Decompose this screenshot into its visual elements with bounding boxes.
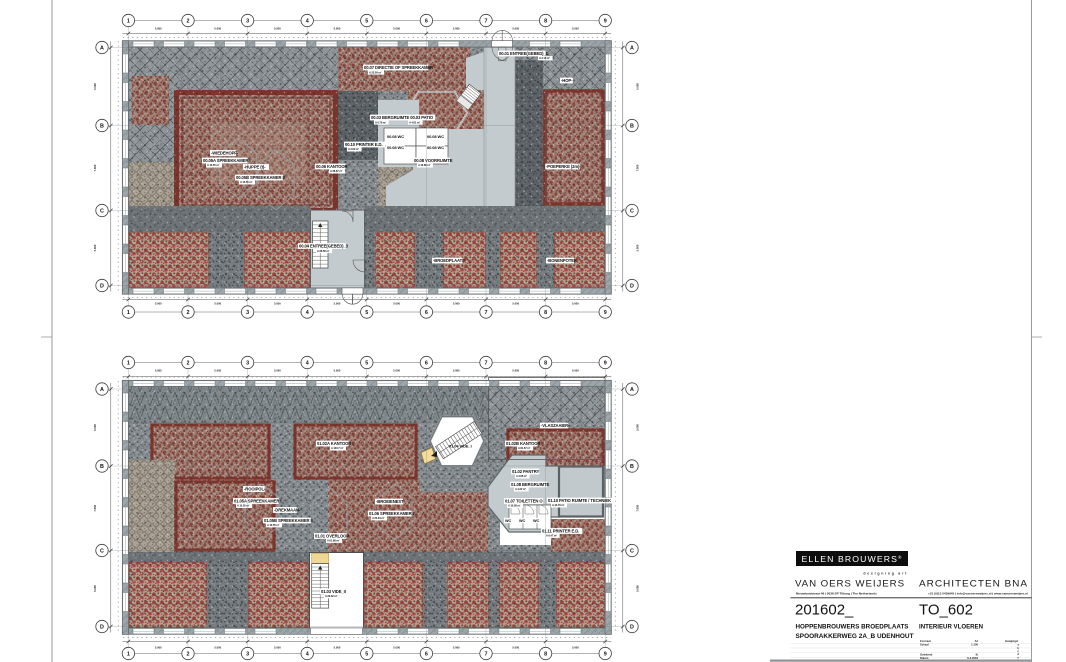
- svg-text:5.000: 5.000: [453, 302, 460, 306]
- svg-text:4: 4: [306, 310, 309, 316]
- svg-text:5.000: 5.000: [274, 302, 281, 306]
- svg-text:5.000: 5.000: [393, 646, 400, 650]
- svg-text:6-4-2018: 6-4-2018: [967, 656, 978, 660]
- svg-text:5.000: 5.000: [155, 302, 162, 306]
- svg-text:4: 4: [306, 360, 309, 366]
- svg-text:A 23.50 m²: A 23.50 m²: [369, 70, 382, 74]
- svg-text:B: B: [100, 464, 104, 470]
- svg-text:-BROEDPLAATS-: -BROEDPLAATS-: [433, 258, 467, 263]
- svg-text:A 6.79 m²: A 6.79 m²: [375, 120, 386, 124]
- svg-text:01.05B SPREEKKAMER II: 01.05B SPREEKKAMER II: [264, 518, 313, 523]
- svg-text:5.000: 5.000: [572, 646, 579, 650]
- svg-text:SPOORAKKERWEG 2A_B UDENHOUT: SPOORAKKERWEG 2A_B UDENHOUT: [796, 633, 915, 640]
- svg-text:5.000: 5.000: [274, 646, 281, 650]
- svg-text:5.000: 5.000: [214, 646, 221, 650]
- svg-text:A 16.89 m²: A 16.89 m²: [418, 163, 431, 167]
- svg-text:3: 3: [246, 651, 249, 657]
- svg-text:7: 7: [485, 310, 488, 316]
- svg-text:1: 1: [127, 18, 130, 24]
- svg-text:Schaal: Schaal: [920, 643, 929, 647]
- svg-text:WC: WC: [519, 519, 525, 523]
- svg-text:-POEPERKE (2m)-: -POEPERKE (2m)-: [546, 164, 581, 169]
- svg-text:C: C: [630, 548, 634, 554]
- svg-text:5.000: 5.000: [636, 244, 640, 251]
- svg-text:A: A: [630, 387, 634, 393]
- svg-text:8: 8: [544, 651, 547, 657]
- svg-text:5.000: 5.000: [453, 27, 460, 31]
- svg-text:5.000: 5.000: [393, 368, 400, 372]
- svg-text:C: C: [100, 208, 104, 214]
- svg-text:00.05B SPREEKKAMER II: 00.05B SPREEKKAMER II: [236, 175, 285, 180]
- svg-text:6: 6: [425, 360, 428, 366]
- svg-text:5.000: 5.000: [214, 27, 221, 31]
- svg-text:+31 (0)13 5439645 | info@vanoe: +31 (0)13 5439645 | info@vanoersweijers.…: [928, 592, 1028, 596]
- svg-text:00.06 KANTOOR: 00.06 KANTOOR: [316, 164, 348, 169]
- svg-text:5.000: 5.000: [334, 302, 341, 306]
- svg-text:00.10 PRINTER E.D.: 00.10 PRINTER E.D.: [345, 142, 383, 147]
- svg-text:1: 1: [127, 360, 130, 366]
- svg-text:A 28.56 m²: A 28.56 m²: [317, 249, 330, 253]
- svg-text:A 4.81 m²: A 4.81 m²: [409, 120, 420, 124]
- svg-text:5.000: 5.000: [155, 368, 162, 372]
- svg-text:9: 9: [604, 360, 607, 366]
- svg-text:VAN OERS WEIJERS: VAN OERS WEIJERS: [795, 579, 905, 590]
- svg-text:A 103.7 m²: A 103.7 m²: [331, 446, 344, 450]
- svg-text:9: 9: [604, 18, 607, 24]
- svg-text:00.08 WC: 00.08 WC: [387, 134, 404, 139]
- svg-text:D: D: [630, 283, 634, 289]
- svg-text:5: 5: [365, 651, 368, 657]
- svg-text:A 2.69 m²: A 2.69 m²: [348, 147, 359, 151]
- svg-text:5.000: 5.000: [512, 27, 519, 31]
- svg-text:ELLEN BROUWERS®: ELLEN BROUWERS®: [802, 554, 903, 564]
- svg-text:A 20.64 m²: A 20.64 m²: [372, 516, 385, 520]
- svg-text:-HOP-: -HOP-: [561, 78, 573, 83]
- svg-text:5.000: 5.000: [214, 302, 221, 306]
- svg-text:5.000: 5.000: [512, 302, 519, 306]
- svg-text:00.08 VOORRUIMTE: 00.08 VOORRUIMTE: [414, 158, 453, 163]
- svg-text:00.08 WC: 00.08 WC: [427, 134, 444, 139]
- svg-text:5.000: 5.000: [636, 424, 640, 431]
- svg-text:7.000: 7.000: [93, 164, 97, 171]
- svg-text:01.05A SPREEKKAMER I: 01.05A SPREEKKAMER I: [234, 498, 281, 503]
- svg-text:7: 7: [485, 18, 488, 24]
- svg-text:00.03 BERGRUIMTE 00.03 PATIO: 00.03 BERGRUIMTE 00.03 PATIO: [371, 115, 434, 120]
- svg-text:7.000: 7.000: [93, 504, 97, 511]
- svg-text:5.000: 5.000: [93, 244, 97, 251]
- svg-text:8: 8: [544, 310, 547, 316]
- svg-text:5.000: 5.000: [453, 368, 460, 372]
- svg-text:5.000: 5.000: [453, 646, 460, 650]
- svg-text:5.000: 5.000: [572, 27, 579, 31]
- svg-text:5.000: 5.000: [274, 368, 281, 372]
- svg-text:A: A: [100, 387, 104, 393]
- svg-text:5.000: 5.000: [155, 27, 162, 31]
- svg-text:B: B: [630, 123, 634, 129]
- svg-text:7: 7: [485, 360, 488, 366]
- svg-text:01.02A KANTOOR: 01.02A KANTOOR: [317, 441, 351, 446]
- svg-text:3: 3: [246, 310, 249, 316]
- svg-text:5.000: 5.000: [214, 368, 221, 372]
- svg-text:5.000: 5.000: [393, 27, 400, 31]
- svg-text:01.11 PRINTER E.D.: 01.11 PRINTER E.D.: [542, 528, 579, 533]
- svg-text:2: 2: [187, 18, 190, 24]
- svg-text:5.000: 5.000: [636, 83, 640, 90]
- svg-text:5.000: 5.000: [636, 585, 640, 592]
- svg-text:1: 1: [127, 310, 130, 316]
- svg-text:1: 1: [127, 651, 130, 657]
- svg-text:Gewijzigd:: Gewijzigd:: [1005, 639, 1019, 643]
- svg-text:2: 2: [187, 651, 190, 657]
- svg-text:-DREKMAAN-: -DREKMAAN-: [274, 507, 301, 512]
- svg-text:6: 6: [425, 651, 428, 657]
- svg-text:A4: A4: [975, 639, 979, 643]
- svg-text:B: B: [630, 464, 634, 470]
- svg-text:Formaat: Formaat: [920, 639, 931, 643]
- svg-text:A 10.55 m²: A 10.55 m²: [240, 180, 253, 184]
- svg-text:4: 4: [306, 651, 309, 657]
- svg-text:5.000: 5.000: [512, 368, 519, 372]
- svg-text:5.000: 5.000: [274, 27, 281, 31]
- svg-text:Nieuwlandstraat 46 | 5038 SP T: Nieuwlandstraat 46 | 5038 SP Tilburg | T…: [796, 592, 877, 596]
- svg-text:ARCHITECTEN BNA: ARCHITECTEN BNA: [919, 579, 1028, 590]
- svg-text:00.07 DIRECTIE OF SPREEKKAMER: 00.07 DIRECTIE OF SPREEKKAMER: [364, 65, 433, 70]
- svg-text:lb: lb: [976, 652, 979, 656]
- svg-text:01.10 PATIO RUIMTE / TECHNIEK: 01.10 PATIO RUIMTE / TECHNIEK: [548, 498, 611, 503]
- svg-text:00.04 ENTREE(GEBED)_3: 00.04 ENTREE(GEBED)_3: [299, 243, 349, 248]
- svg-text:-BROEIENEST-: -BROEIENEST-: [376, 499, 405, 504]
- svg-text:INTERIEUR VLOEREN: INTERIEUR VLOEREN: [919, 624, 983, 631]
- svg-text:7.000: 7.000: [636, 164, 640, 171]
- svg-text:5.000: 5.000: [334, 368, 341, 372]
- svg-text:00.08 WC: 00.08 WC: [427, 145, 444, 150]
- svg-text:7: 7: [485, 651, 488, 657]
- svg-text:01.02B KANTOOR: 01.02B KANTOOR: [506, 441, 540, 446]
- svg-text:TO_602: TO_602: [919, 602, 973, 619]
- svg-text:A 3.18 m²: A 3.18 m²: [539, 56, 550, 60]
- svg-text:5.000: 5.000: [93, 424, 97, 431]
- svg-text:01.03 VIDE_II: 01.03 VIDE_II: [321, 589, 346, 594]
- svg-text:5.000: 5.000: [334, 27, 341, 31]
- svg-text:designing art: designing art: [863, 572, 908, 576]
- svg-text:5: 5: [365, 360, 368, 366]
- svg-text:201602_: 201602_: [795, 602, 854, 619]
- svg-text:A 29.32 m²: A 29.32 m²: [325, 594, 338, 598]
- svg-text:8: 8: [544, 18, 547, 24]
- svg-text:00.08 WC: 00.08 WC: [387, 145, 404, 150]
- svg-text:-ROOIPOL-: -ROOIPOL-: [244, 486, 266, 491]
- svg-text:9: 9: [604, 651, 607, 657]
- svg-text:3: 3: [246, 18, 249, 24]
- svg-text:-BONENPOTER-: -BONENPOTER-: [547, 258, 579, 263]
- svg-text:B: B: [100, 123, 104, 129]
- svg-text:5.000: 5.000: [572, 302, 579, 306]
- svg-text:A 10.58 m²: A 10.58 m²: [508, 504, 521, 508]
- svg-text:A: A: [100, 45, 104, 51]
- svg-text:5: 5: [365, 18, 368, 24]
- svg-text:WC: WC: [505, 519, 511, 523]
- svg-text:1:100: 1:100: [971, 643, 978, 647]
- svg-text:A 38.67 m²: A 38.67 m²: [330, 169, 343, 173]
- svg-text:01.02 PANTRY: 01.02 PANTRY: [512, 469, 539, 474]
- svg-text:01.07 TOILETTEN O: 01.07 TOILETTEN O: [505, 498, 543, 503]
- svg-text:6: 6: [425, 310, 428, 316]
- svg-text:C: C: [100, 548, 104, 554]
- svg-text:5.000: 5.000: [155, 646, 162, 650]
- svg-text:-HUPPE (t)-: -HUPPE (t)-: [244, 164, 266, 169]
- svg-text:8: 8: [544, 360, 547, 366]
- svg-text:A 81.67 m²: A 81.67 m²: [518, 446, 531, 450]
- svg-text:5: 5: [365, 310, 368, 316]
- svg-text:WC: WC: [533, 519, 539, 523]
- svg-text:7.000: 7.000: [636, 504, 640, 511]
- svg-text:A 6.47 m²: A 6.47 m²: [546, 534, 557, 538]
- svg-text:A 3.68 m²: A 3.68 m²: [516, 474, 527, 478]
- svg-text:Getekend: Getekend: [920, 652, 933, 656]
- svg-text:A 10.55 m²: A 10.55 m²: [267, 523, 280, 527]
- svg-text:5.000: 5.000: [93, 83, 97, 90]
- svg-text:5.000: 5.000: [393, 302, 400, 306]
- svg-text:D: D: [100, 283, 104, 289]
- svg-text:Datum: Datum: [920, 656, 929, 660]
- svg-text:C: C: [630, 208, 634, 214]
- svg-text:5.000: 5.000: [334, 646, 341, 650]
- svg-text:A 10.70 m²: A 10.70 m²: [552, 503, 565, 507]
- svg-text:-VLASZAAIER-: -VLASZAAIER-: [541, 423, 570, 428]
- svg-text:4: 4: [306, 18, 309, 24]
- svg-text:A 10.55 m²: A 10.55 m²: [207, 163, 220, 167]
- svg-text:2: 2: [187, 310, 190, 316]
- svg-text:01.06 SPREEKKAMER I: 01.06 SPREEKKAMER I: [369, 511, 414, 516]
- svg-text:6: 6: [425, 18, 428, 24]
- svg-text:9: 9: [604, 310, 607, 316]
- svg-text:5.000: 5.000: [93, 585, 97, 592]
- svg-text:00.01 ENTREE(GEBED)_1: 00.01 ENTREE(GEBED)_1: [499, 51, 549, 56]
- svg-text:D: D: [100, 624, 104, 630]
- svg-text:D: D: [630, 624, 634, 630]
- svg-text:5.000: 5.000: [572, 368, 579, 372]
- svg-text:5.000: 5.000: [512, 646, 519, 650]
- svg-text:3: 3: [246, 360, 249, 366]
- svg-text:A: A: [630, 45, 634, 51]
- svg-text:01.01 OVERLOOP: 01.01 OVERLOOP: [315, 533, 349, 538]
- svg-text:2: 2: [187, 360, 190, 366]
- svg-text:01.04 VIDE_I: 01.04 VIDE_I: [449, 443, 472, 448]
- svg-text:A 61.88 m²: A 61.88 m²: [327, 539, 340, 543]
- svg-text:01.08 BERGRUIMTE: 01.08 BERGRUIMTE: [511, 482, 549, 487]
- svg-text:HOPPENBROUWERS BROEDPLAATS: HOPPENBROUWERS BROEDPLAATS: [796, 624, 909, 631]
- svg-text:A 4.32 m²: A 4.32 m²: [515, 487, 526, 491]
- svg-text:00.05A SPREEKKAMER I: 00.05A SPREEKKAMER I: [203, 158, 250, 163]
- svg-text:-WIEDEHOPF-: -WIEDEHOPF-: [211, 150, 239, 155]
